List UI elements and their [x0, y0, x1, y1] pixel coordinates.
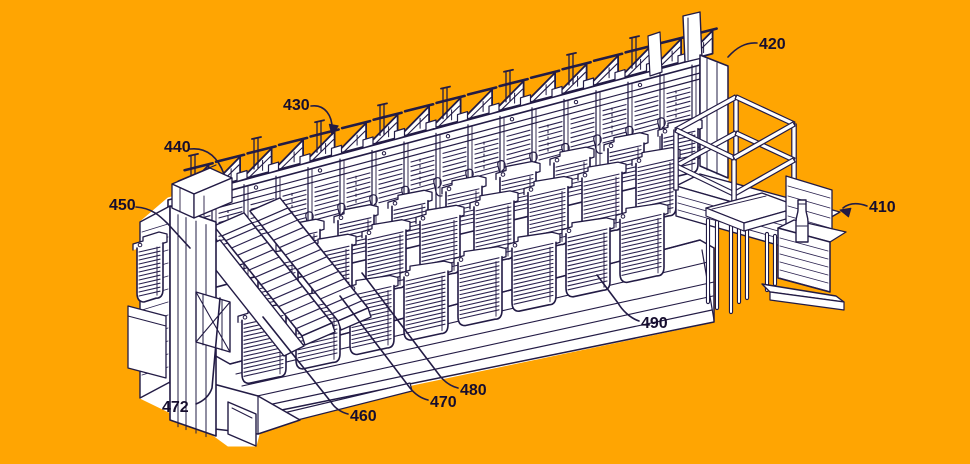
- svg-text:472: 472: [162, 399, 189, 416]
- svg-text:430: 430: [283, 97, 310, 114]
- svg-text:460: 460: [350, 408, 377, 425]
- svg-text:420: 420: [759, 36, 786, 53]
- svg-text:480: 480: [460, 382, 487, 399]
- svg-text:410: 410: [869, 199, 896, 216]
- svg-text:470: 470: [430, 394, 457, 411]
- svg-text:450: 450: [109, 197, 136, 214]
- svg-text:440: 440: [164, 139, 191, 156]
- svg-text:490: 490: [641, 315, 668, 332]
